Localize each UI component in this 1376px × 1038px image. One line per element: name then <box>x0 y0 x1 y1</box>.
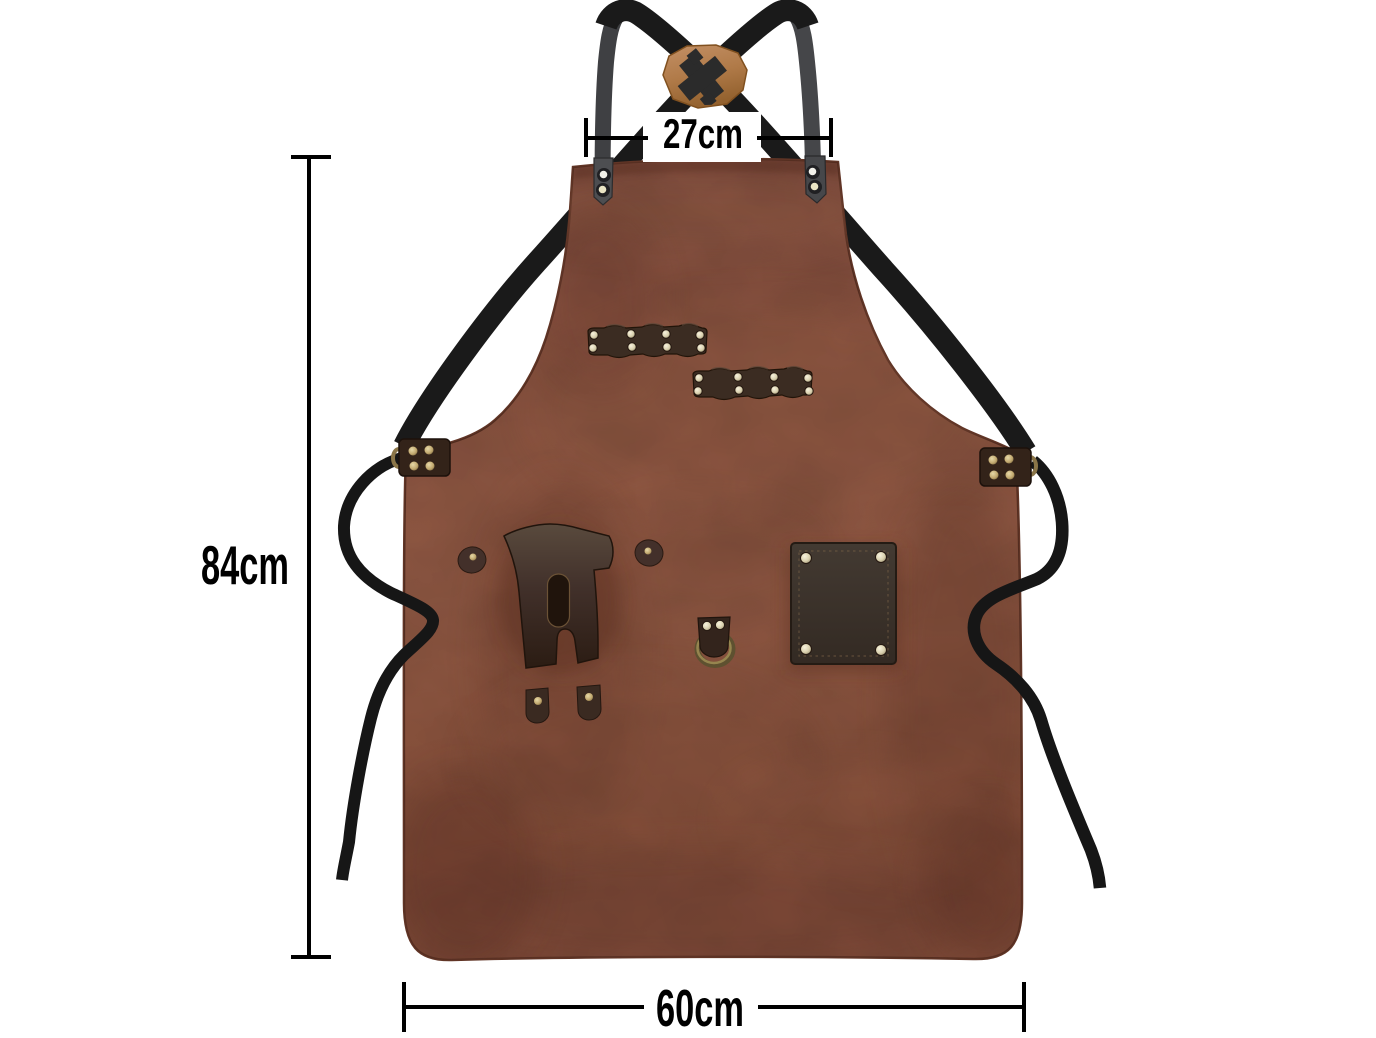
svg-text:60cm: 60cm <box>656 980 744 1038</box>
svg-text:84cm: 84cm <box>201 534 289 596</box>
svg-text:27cm: 27cm <box>663 110 743 157</box>
